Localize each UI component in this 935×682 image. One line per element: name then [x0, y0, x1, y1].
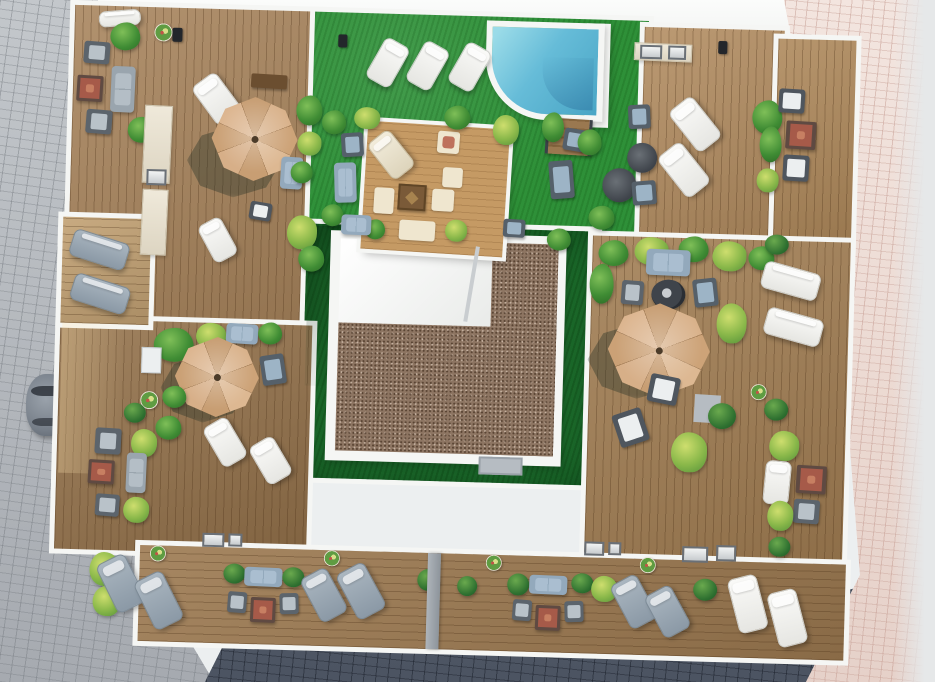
- sofa-gray: [125, 452, 147, 493]
- armchair-gray: [792, 499, 820, 525]
- table-red: [87, 459, 114, 485]
- armchair-gray: [85, 109, 113, 135]
- appliance: [228, 533, 242, 546]
- plant-y: [492, 115, 519, 146]
- plant-y: [767, 500, 794, 531]
- armchair-gray: [620, 280, 644, 306]
- armchair-gray: [94, 427, 122, 455]
- sofa-blue: [244, 567, 283, 588]
- appliance: [640, 45, 662, 60]
- plant: [296, 95, 323, 126]
- plant: [322, 110, 347, 135]
- appliance: [716, 545, 736, 562]
- appliance: [668, 46, 686, 60]
- counter: [140, 189, 169, 256]
- plant: [155, 415, 182, 440]
- walllight: [172, 28, 182, 42]
- armchair-gray: [94, 493, 120, 517]
- appliance: [146, 169, 166, 186]
- appliance: [682, 546, 708, 563]
- plant-y: [716, 303, 747, 344]
- chair-white: [778, 88, 805, 114]
- sofa-gray: [110, 66, 136, 113]
- chair-blue: [548, 160, 575, 200]
- sofa-blue: [226, 323, 259, 345]
- lounger-white: [762, 460, 792, 506]
- plant: [110, 22, 141, 51]
- walllight: [338, 34, 347, 47]
- sofa-blue: [529, 575, 568, 596]
- sofa-blue: [334, 162, 357, 203]
- armchair-gray: [83, 41, 111, 65]
- chair-blue: [341, 132, 364, 157]
- appliance: [608, 542, 621, 555]
- cushion: [373, 187, 395, 214]
- table-red: [76, 75, 104, 103]
- chair-blue: [628, 104, 651, 129]
- sofa-blue: [646, 249, 691, 277]
- planter: [141, 347, 162, 374]
- plant: [258, 322, 283, 345]
- armchair-gray: [512, 599, 533, 621]
- chair-blue: [692, 277, 719, 308]
- plant: [298, 245, 325, 272]
- rooftop-ac-unit: [478, 456, 522, 475]
- armchair-gray: [564, 601, 584, 622]
- table-wood: [397, 184, 427, 212]
- chair-blue: [503, 219, 526, 238]
- plant: [162, 386, 187, 409]
- walllight: [718, 41, 727, 54]
- plant-y: [354, 107, 381, 130]
- plant-y: [756, 168, 779, 193]
- plant: [290, 161, 313, 184]
- cushion: [442, 167, 463, 188]
- chair-blue: [631, 180, 657, 206]
- plant-y: [670, 432, 707, 473]
- table-red: [785, 120, 817, 150]
- appliance: [202, 533, 224, 548]
- plant: [588, 205, 615, 230]
- cushion-red: [437, 131, 461, 155]
- divider: [425, 553, 441, 649]
- plant-y: [297, 131, 322, 156]
- table-red: [795, 465, 827, 495]
- rooftop-group: [0, 0, 935, 682]
- chair-white: [782, 154, 810, 182]
- sofa-blue: [341, 214, 372, 235]
- armchair-gray: [279, 593, 299, 614]
- plant-y: [769, 430, 800, 461]
- chair-white: [248, 200, 273, 221]
- plant: [547, 228, 572, 251]
- core-roof-gravel-south: [335, 322, 556, 456]
- plant-y: [123, 496, 150, 523]
- cushion: [398, 219, 435, 241]
- plant-y: [287, 215, 318, 250]
- plant: [577, 129, 602, 156]
- chair-white: [646, 373, 681, 406]
- plant-y: [712, 241, 747, 272]
- bench-wood: [251, 73, 288, 89]
- chair-blue: [259, 353, 287, 386]
- table-red: [250, 597, 276, 623]
- armchair-gray: [227, 591, 248, 613]
- table-red: [535, 605, 561, 631]
- plant: [598, 240, 629, 267]
- plant: [444, 105, 471, 130]
- cushion: [431, 189, 454, 212]
- plant-y: [445, 219, 468, 242]
- appliance: [584, 541, 604, 556]
- rooftop-plan-render: [0, 0, 935, 682]
